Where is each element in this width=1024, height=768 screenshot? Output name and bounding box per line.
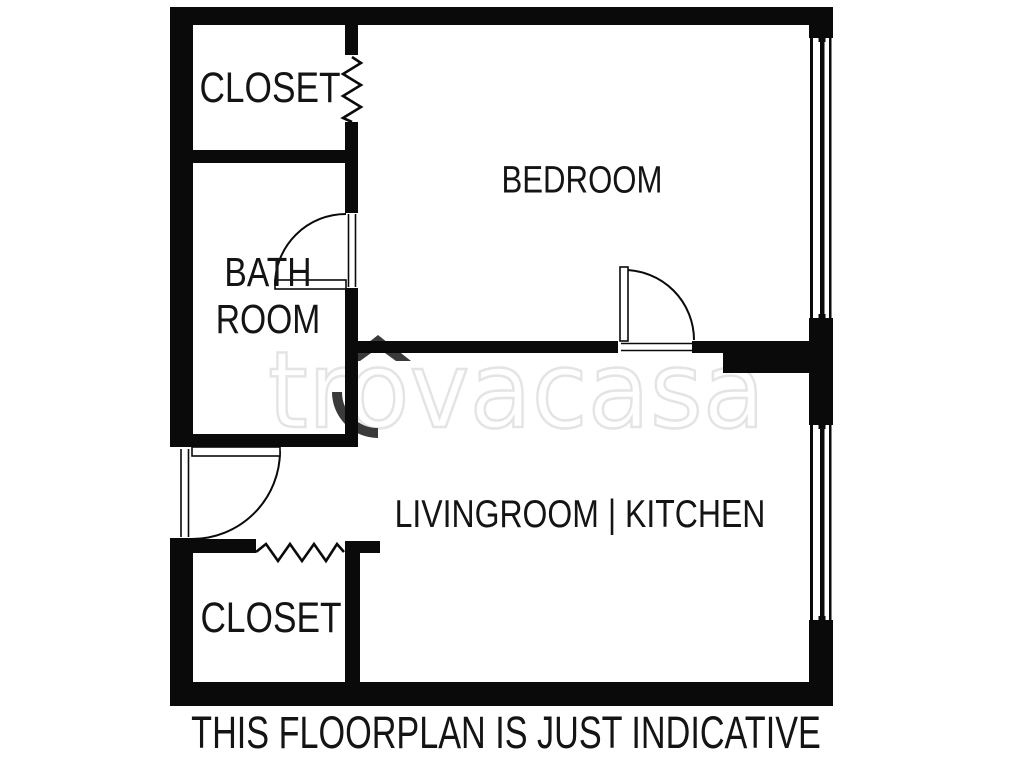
entrance-door-icon — [181, 447, 280, 539]
room-label-bathroom-line1: BATH — [216, 249, 321, 296]
room-label-bathroom: BATH ROOM — [216, 249, 321, 343]
window-livingroom-icon — [809, 425, 833, 620]
window-bedroom-icon — [809, 38, 833, 318]
room-label-closet-bottom: CLOSET — [200, 595, 341, 641]
symbols-layer — [0, 0, 1024, 768]
bedroom-door-icon — [620, 267, 694, 351]
accordion-door-bottom-closet-icon — [256, 544, 344, 561]
room-label-livingroom-kitchen: LIVINGROOM | KITCHEN — [395, 494, 766, 536]
disclaimer-caption: THIS FLOORPLAN IS JUST INDICATIVE — [191, 707, 821, 759]
room-label-closet-top: CLOSET — [199, 65, 340, 111]
room-label-bathroom-line2: ROOM — [216, 296, 321, 343]
floorplan: trovacasa — [0, 0, 1024, 768]
room-label-bedroom: BEDROOM — [501, 160, 662, 201]
accordion-door-top-closet-icon — [343, 57, 361, 122]
